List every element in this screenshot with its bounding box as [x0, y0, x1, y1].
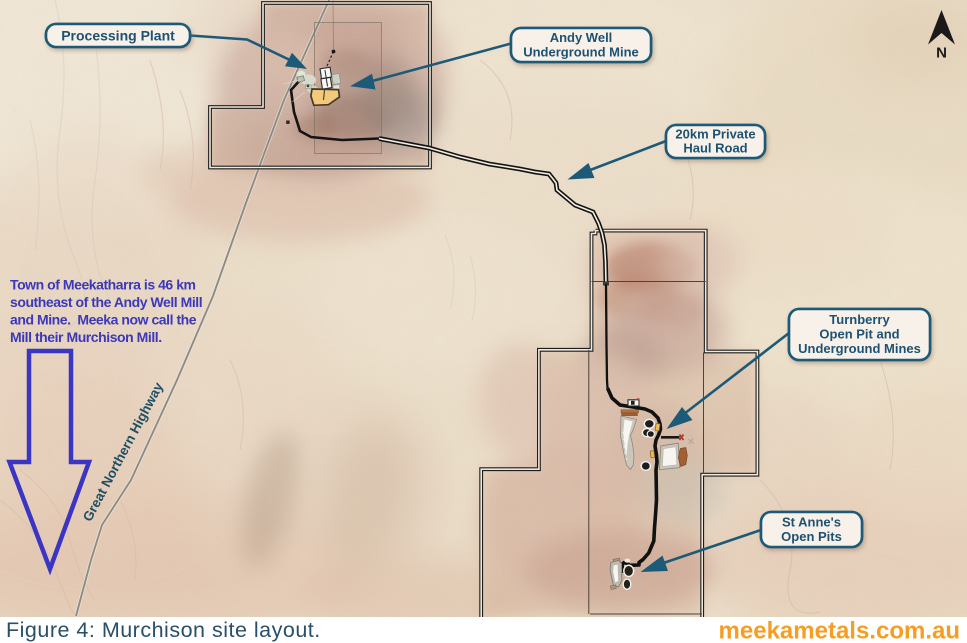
svg-text:Underground Mine: Underground Mine: [523, 45, 639, 60]
svg-text:St Anne's: St Anne's: [782, 515, 841, 530]
svg-text:southeast of the Andy Well Mil: southeast of the Andy Well Mill: [10, 294, 202, 310]
svg-text:Processing Plant: Processing Plant: [61, 28, 175, 44]
svg-text:Turnberry: Turnberry: [829, 312, 890, 327]
svg-text:Figure 4: Murchison site layou: Figure 4: Murchison site layout.: [6, 618, 321, 642]
svg-text:Underground Mines: Underground Mines: [798, 341, 921, 356]
svg-text:20km Private: 20km Private: [675, 127, 755, 142]
svg-text:N: N: [936, 45, 947, 62]
svg-text:Open Pits: Open Pits: [781, 529, 842, 544]
svg-text:and Mine. Meeka now call the: and Mine. Meeka now call the: [10, 312, 197, 328]
svg-text:Mill their Murchison Mill.: Mill their Murchison Mill.: [10, 329, 162, 345]
svg-text:Open Pit and: Open Pit and: [819, 327, 899, 342]
svg-text:meekametals.com.au: meekametals.com.au: [719, 618, 960, 643]
svg-text:Haul Road: Haul Road: [683, 141, 747, 156]
svg-text:Town of Meekatharra is 46 km: Town of Meekatharra is 46 km: [10, 277, 196, 293]
svg-text:Andy Well: Andy Well: [550, 30, 613, 45]
